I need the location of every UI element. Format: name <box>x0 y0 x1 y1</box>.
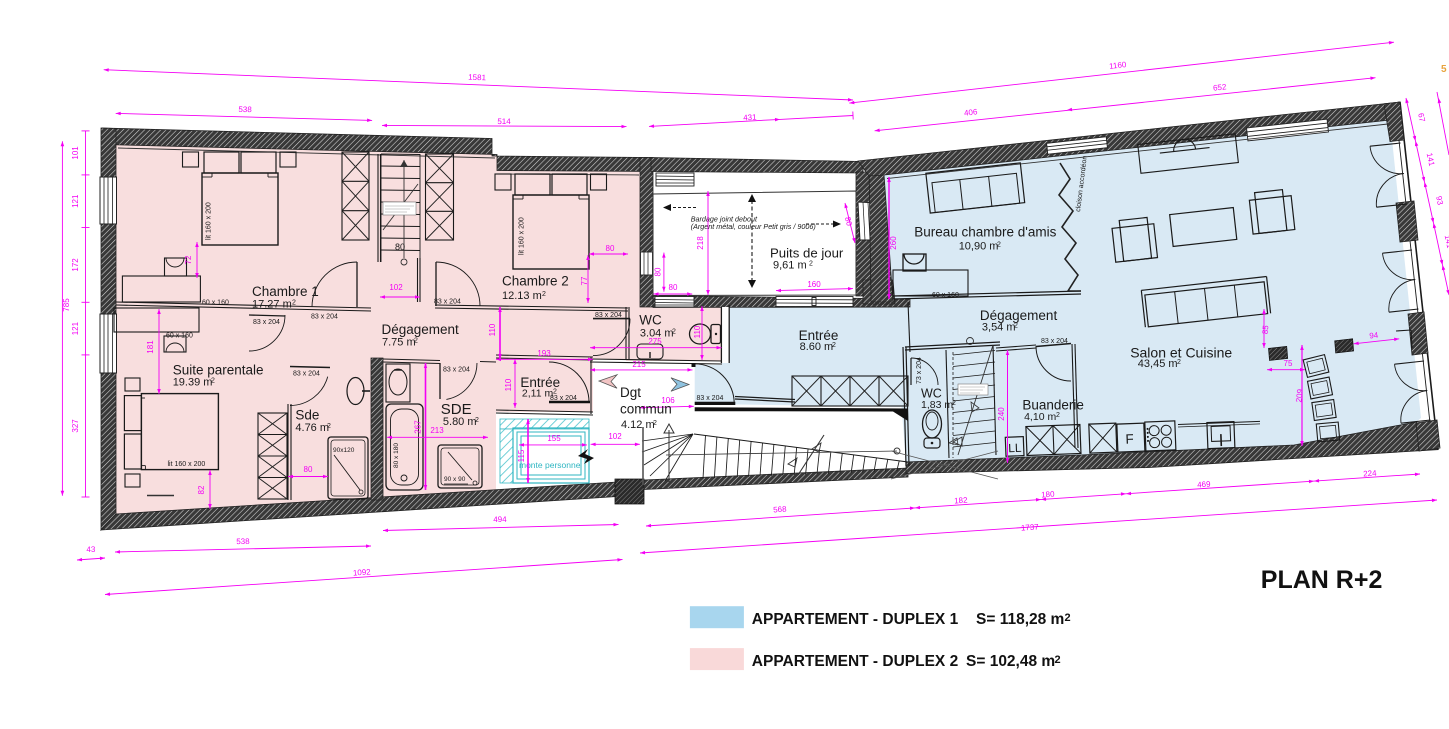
svg-text:431: 431 <box>743 113 757 123</box>
svg-text:218: 218 <box>696 236 705 250</box>
svg-text:785: 785 <box>62 298 71 312</box>
svg-text:193: 193 <box>537 349 551 358</box>
svg-text:60 x 160: 60 x 160 <box>202 300 229 307</box>
svg-text:2: 2 <box>327 423 331 430</box>
svg-text:80: 80 <box>669 283 678 292</box>
svg-text:215: 215 <box>632 360 646 369</box>
svg-text:lit 160 x 200: lit 160 x 200 <box>519 217 526 255</box>
svg-text:469: 469 <box>1197 480 1211 490</box>
svg-text:90 x 90: 90 x 90 <box>444 476 466 483</box>
svg-text:494: 494 <box>493 515 507 524</box>
svg-text:2: 2 <box>542 291 546 298</box>
svg-text:110: 110 <box>504 378 513 391</box>
svg-text:102: 102 <box>608 432 622 441</box>
svg-text:80: 80 <box>654 267 663 276</box>
svg-text:F: F <box>1125 431 1134 446</box>
svg-text:Bureau chambre d'amis: Bureau chambre d'amis <box>914 225 1056 240</box>
svg-text:83 x 204: 83 x 204 <box>443 367 470 374</box>
svg-text:Suite parentale: Suite parentale <box>173 363 264 378</box>
svg-text:240: 240 <box>997 407 1006 421</box>
svg-text:85: 85 <box>1261 324 1271 334</box>
svg-text:652: 652 <box>1213 82 1228 92</box>
svg-text:PLAN R+2: PLAN R+2 <box>1261 566 1383 594</box>
svg-text:Chambre 2: Chambre 2 <box>502 274 569 289</box>
svg-text:538: 538 <box>238 105 252 114</box>
svg-text:1581: 1581 <box>468 73 487 83</box>
svg-text:Sde: Sde <box>295 408 319 423</box>
svg-text:3.04 m: 3.04 m <box>640 327 674 339</box>
svg-text:2: 2 <box>672 328 676 335</box>
svg-text:73 x 204: 73 x 204 <box>916 357 923 384</box>
svg-text:Dgt: Dgt <box>620 385 641 400</box>
svg-text:80 x 180: 80 x 180 <box>393 443 400 468</box>
svg-text:327: 327 <box>71 419 80 433</box>
svg-text:83 x 204: 83 x 204 <box>550 395 577 402</box>
svg-text:83 x 204: 83 x 204 <box>293 371 320 378</box>
svg-text:121: 121 <box>71 194 80 208</box>
svg-text:2: 2 <box>952 400 956 407</box>
svg-text:110: 110 <box>693 325 702 338</box>
svg-text:83 x 204: 83 x 204 <box>595 312 622 319</box>
svg-text:110: 110 <box>488 323 497 336</box>
svg-text:182: 182 <box>954 496 968 506</box>
svg-text:8.60 m: 8.60 m <box>800 341 834 353</box>
svg-text:2: 2 <box>1055 654 1061 666</box>
svg-text:3,54 m: 3,54 m <box>982 322 1016 334</box>
svg-text:43: 43 <box>86 545 96 554</box>
svg-text:9,61 m: 9,61 m <box>773 260 807 272</box>
svg-text:514: 514 <box>497 117 511 126</box>
svg-text:12.13 m: 12.13 m <box>502 290 542 302</box>
svg-text:538: 538 <box>236 537 250 546</box>
svg-text:17.27 m: 17.27 m <box>252 299 292 311</box>
svg-text:83 x 204: 83 x 204 <box>311 314 338 321</box>
svg-text:83 x 204: 83 x 204 <box>697 395 724 402</box>
svg-text:2: 2 <box>997 242 1001 249</box>
svg-text:lit 160 x 200: lit 160 x 200 <box>168 461 206 468</box>
svg-text:82: 82 <box>197 485 206 494</box>
svg-text:APPARTEMENT - DUPLEX 1: APPARTEMENT - DUPLEX 1 <box>752 611 959 628</box>
svg-text:155: 155 <box>547 434 561 443</box>
svg-text:115: 115 <box>517 449 526 462</box>
svg-text:lit 160 x 200: lit 160 x 200 <box>206 202 213 240</box>
svg-text:Dégagement: Dégagement <box>980 308 1058 323</box>
svg-text:224: 224 <box>1363 469 1377 479</box>
svg-text:2: 2 <box>211 378 215 385</box>
svg-text:160: 160 <box>807 280 821 289</box>
svg-text:209: 209 <box>1294 388 1304 403</box>
svg-text:2: 2 <box>475 417 479 424</box>
svg-text:94: 94 <box>1369 331 1379 341</box>
svg-text:2: 2 <box>553 389 557 396</box>
svg-text:260: 260 <box>889 236 898 250</box>
svg-text:2: 2 <box>1177 359 1181 366</box>
svg-text:LL: LL <box>1008 441 1022 456</box>
svg-text:121: 121 <box>71 321 80 335</box>
svg-text:2,11 m: 2,11 m <box>522 388 554 400</box>
svg-text:2: 2 <box>1065 612 1071 624</box>
svg-text:Puits de jour: Puits de jour <box>770 246 844 261</box>
svg-text:80: 80 <box>606 244 615 253</box>
svg-text:80: 80 <box>395 242 405 252</box>
svg-text:4.76 m: 4.76 m <box>295 422 329 434</box>
svg-text:2: 2 <box>653 420 657 427</box>
svg-text:77: 77 <box>580 276 589 285</box>
svg-text:43,45 m: 43,45 m <box>1138 358 1178 370</box>
svg-text:Chambre 1: Chambre 1 <box>252 284 319 299</box>
svg-text:101: 101 <box>71 146 80 160</box>
svg-text:172: 172 <box>71 258 80 272</box>
svg-text:1737: 1737 <box>1021 522 1040 532</box>
svg-text:5: 5 <box>1441 64 1447 75</box>
svg-text:102: 102 <box>389 283 403 292</box>
svg-text:19.39 m: 19.39 m <box>173 377 213 389</box>
svg-text:83 x 204: 83 x 204 <box>253 319 280 326</box>
svg-text:commun: commun <box>620 402 672 417</box>
svg-text:10,90 m: 10,90 m <box>959 241 999 253</box>
svg-text:Dégagement: Dégagement <box>382 322 460 337</box>
svg-text:568: 568 <box>773 505 787 515</box>
svg-text:2: 2 <box>1056 412 1060 419</box>
svg-text:2: 2 <box>292 300 296 307</box>
svg-text:APPARTEMENT - DUPLEX 2: APPARTEMENT - DUPLEX 2 <box>752 653 958 670</box>
svg-text:406: 406 <box>964 107 979 117</box>
svg-text:2: 2 <box>832 342 836 349</box>
svg-text:2: 2 <box>414 338 418 345</box>
svg-text:4.12 m: 4.12 m <box>621 419 655 431</box>
svg-text:5.80 m: 5.80 m <box>443 416 477 428</box>
svg-text:S= 118,28 m: S= 118,28 m <box>976 611 1064 628</box>
svg-text:7.75 m: 7.75 m <box>382 337 416 349</box>
svg-text:180: 180 <box>1041 490 1055 500</box>
svg-text:S= 102,48 m: S= 102,48 m <box>966 653 1055 670</box>
svg-text:2: 2 <box>1014 323 1018 330</box>
svg-text:72: 72 <box>184 255 193 264</box>
svg-text:75: 75 <box>1284 359 1293 368</box>
svg-text:WC: WC <box>639 313 662 328</box>
svg-text:2: 2 <box>809 261 813 268</box>
svg-text:1,83 m: 1,83 m <box>921 399 953 411</box>
svg-text:90x120: 90x120 <box>333 447 355 454</box>
svg-text:267: 267 <box>414 420 423 434</box>
svg-text:181: 181 <box>146 340 155 354</box>
svg-text:83 x 204: 83 x 204 <box>1041 338 1068 345</box>
svg-text:80: 80 <box>304 465 313 474</box>
svg-text:83 x 204: 83 x 204 <box>434 299 461 306</box>
svg-text:4,10 m: 4,10 m <box>1024 411 1056 423</box>
svg-text:(Argent métal, couleur Petit g: (Argent métal, couleur Petit gris / 9006… <box>691 222 816 231</box>
svg-text:1092: 1092 <box>353 567 372 577</box>
